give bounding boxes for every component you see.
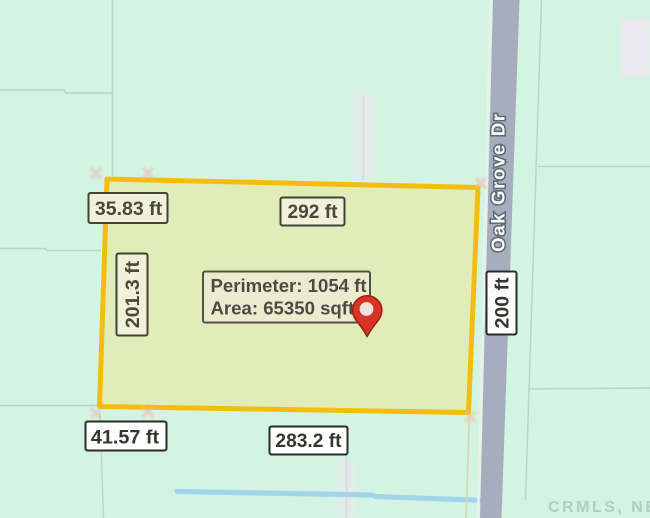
svg-text:Perimeter: 1054 ft: Perimeter: 1054 ft	[211, 275, 367, 296]
svg-text:201.3 ft: 201.3 ft	[122, 260, 144, 328]
svg-text:CRMLS, NET: CRMLS, NET	[548, 499, 650, 516]
svg-text:292 ft: 292 ft	[287, 202, 338, 223]
svg-text:Oak Grove Dr: Oak Grove Dr	[488, 112, 509, 252]
svg-text:35.83 ft: 35.83 ft	[95, 198, 163, 220]
svg-text:Area: 65350 sqft: Area: 65350 sqft	[211, 298, 355, 319]
svg-text:200 ft: 200 ft	[492, 277, 514, 328]
svg-text:41.57 ft: 41.57 ft	[91, 427, 160, 449]
svg-text:283.2 ft: 283.2 ft	[275, 431, 342, 452]
